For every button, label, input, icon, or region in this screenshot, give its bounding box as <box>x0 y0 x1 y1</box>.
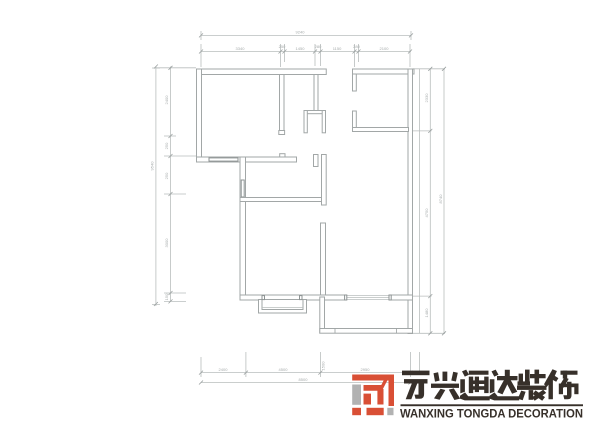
svg-text:1480: 1480 <box>424 308 429 318</box>
svg-text:280: 280 <box>315 44 322 49</box>
svg-text:3000: 3000 <box>164 238 169 248</box>
svg-text:1450: 1450 <box>296 46 306 51</box>
svg-text:2950: 2950 <box>361 367 371 372</box>
svg-text:4750: 4750 <box>424 208 429 218</box>
svg-text:8740: 8740 <box>438 194 443 204</box>
svg-text:2330: 2330 <box>424 93 429 103</box>
svg-text:150: 150 <box>164 293 169 300</box>
svg-text:8500: 8500 <box>299 377 309 382</box>
svg-text:9540: 9540 <box>150 161 155 171</box>
svg-text:280: 280 <box>353 44 360 49</box>
svg-text:4500: 4500 <box>279 367 289 372</box>
svg-text:2400: 2400 <box>164 95 169 105</box>
svg-text:1500: 1500 <box>321 361 326 371</box>
svg-text:9240: 9240 <box>296 30 306 35</box>
svg-text:2100: 2100 <box>380 46 390 51</box>
svg-text:250: 250 <box>164 172 169 179</box>
svg-text:250: 250 <box>164 142 169 149</box>
svg-text:1150: 1150 <box>333 46 342 51</box>
svg-text:2400: 2400 <box>219 367 229 372</box>
svg-text:3340: 3340 <box>236 46 246 51</box>
svg-text:WANXING TONGDA DECORATION: WANXING TONGDA DECORATION <box>400 406 583 420</box>
svg-text:250: 250 <box>279 44 286 49</box>
